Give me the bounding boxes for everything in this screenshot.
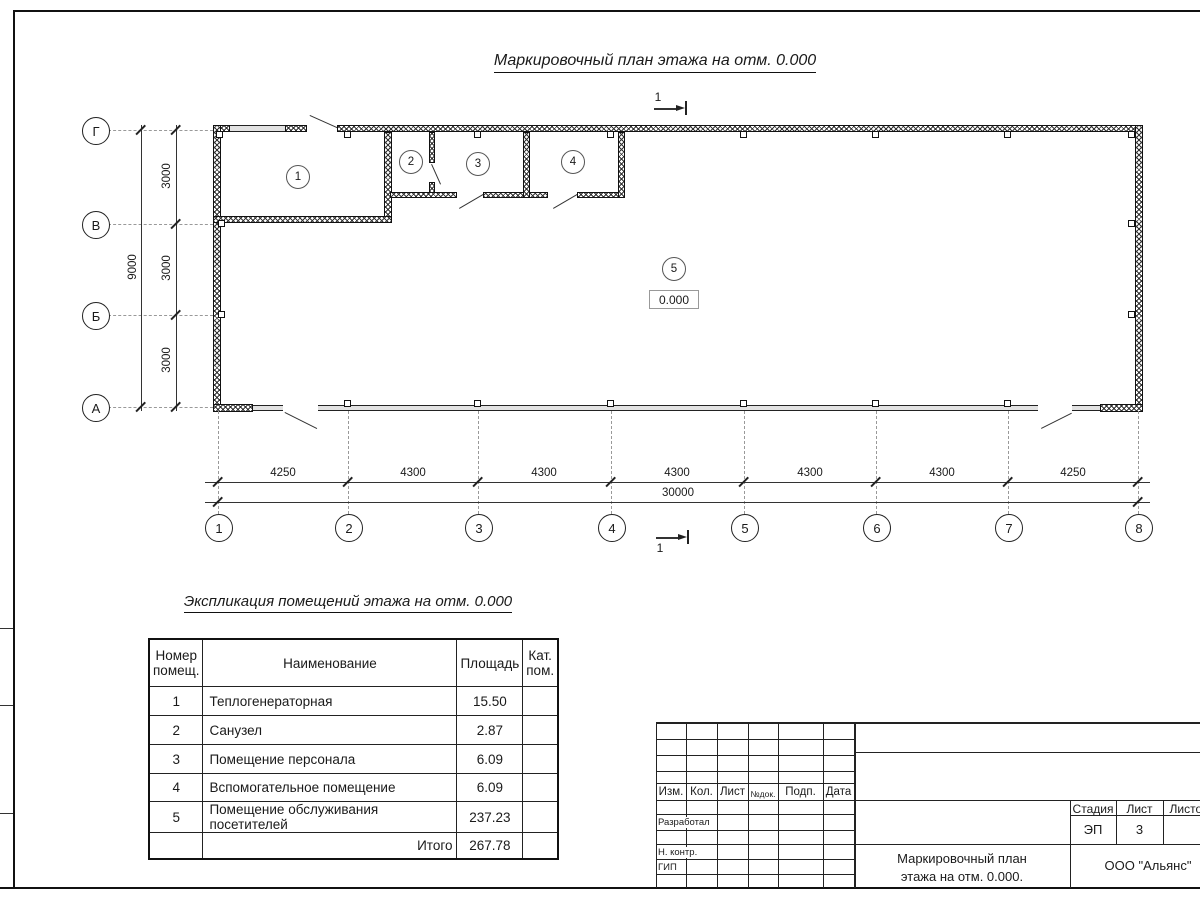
grid-axis-bubble: 4 xyxy=(598,514,626,542)
wall-segment xyxy=(1100,404,1143,412)
wall-segment xyxy=(523,132,530,198)
wall-segment xyxy=(213,404,253,412)
title-block-line xyxy=(656,874,854,875)
change-header-cell: Дата xyxy=(823,786,854,798)
title-block-line xyxy=(656,814,854,815)
col-header: Площадь xyxy=(457,639,523,687)
column-marker xyxy=(607,131,614,138)
company-name: ООО "Альянс" xyxy=(1070,858,1200,873)
column-marker xyxy=(872,131,879,138)
wall-segment xyxy=(483,192,548,198)
col-header: Номер помещ. xyxy=(149,639,203,687)
column-marker xyxy=(607,400,614,407)
table-row: 1 Теплогенераторная 15.50 xyxy=(149,687,558,716)
title-block-line xyxy=(656,722,657,888)
explication-table: Номер помещ. Наименование Площадь Кат. п… xyxy=(148,638,559,860)
room-number-bubble: 5 xyxy=(662,257,686,281)
change-header-cell: Лист xyxy=(717,786,748,798)
title-block-line xyxy=(656,739,854,740)
column-marker xyxy=(218,220,225,227)
title-block-line xyxy=(656,844,1200,845)
explication-title: Экспликация помещений этажа на отм. 0.00… xyxy=(168,593,528,613)
role-label: ГИП xyxy=(658,862,677,873)
change-header-cell: Подп. xyxy=(778,786,823,798)
title-block-line xyxy=(854,752,1200,753)
dimension-label: 4250 xyxy=(1038,467,1108,479)
frame-bottom xyxy=(0,887,1200,889)
total-label: Итого xyxy=(203,833,457,859)
frame-margin-mark xyxy=(0,705,13,706)
title-block-line xyxy=(656,783,854,784)
section-cut-bar xyxy=(685,101,687,115)
window-symbol xyxy=(230,125,285,132)
change-header-cell: Изм. xyxy=(656,786,686,798)
column-marker xyxy=(740,400,747,407)
title-block-line xyxy=(778,722,779,888)
dimension-label: 4300 xyxy=(378,467,448,479)
section-cut-line xyxy=(654,108,677,110)
dimension-line xyxy=(176,125,177,411)
table-header-row: Номер помещ. Наименование Площадь Кат. п… xyxy=(149,639,558,687)
frame-margin-mark xyxy=(0,813,13,814)
section-cut-label: 1 xyxy=(648,90,668,104)
change-header-cell: Кол. xyxy=(686,786,717,798)
dimension-label: 4300 xyxy=(907,467,977,479)
wall-segment xyxy=(213,125,221,411)
dimension-label: 4300 xyxy=(509,467,579,479)
grid-axis-line xyxy=(348,411,349,514)
role-label: Н. контр. xyxy=(658,847,697,858)
grid-axis-line xyxy=(108,224,213,225)
column-marker xyxy=(740,131,747,138)
section-cut-label: 1 xyxy=(650,541,670,555)
table-row: 2 Санузел 2.87 xyxy=(149,716,558,745)
grid-axis-bubble: 8 xyxy=(1125,514,1153,542)
dimension-label: 3000 xyxy=(161,240,173,296)
wall-segment xyxy=(390,192,457,198)
door-swing xyxy=(553,194,578,209)
elevation-mark: 0.000 xyxy=(649,290,699,309)
dimension-label: 4300 xyxy=(775,467,845,479)
grid-axis-bubble: А xyxy=(82,394,110,422)
section-cut-bar xyxy=(687,530,689,544)
grid-axis-bubble: Б xyxy=(82,302,110,330)
grid-axis-line xyxy=(744,411,745,514)
wall-segment xyxy=(618,132,625,198)
table-row: 4 Вспомогательное помещение 6.09 xyxy=(149,774,558,802)
grid-axis-bubble: 2 xyxy=(335,514,363,542)
grid-axis-line xyxy=(108,315,213,316)
grid-axis-bubble: 1 xyxy=(205,514,233,542)
column-marker xyxy=(1128,131,1135,138)
title-block-line xyxy=(686,722,687,888)
door-swing xyxy=(310,115,338,128)
grid-axis-bubble: В xyxy=(82,211,110,239)
title-block-line xyxy=(656,859,854,860)
grid-axis-bubble: Г xyxy=(82,117,110,145)
title-block-line xyxy=(656,800,1200,801)
sheet-value: 3 xyxy=(1116,822,1163,837)
doc-title: Маркировочный план этажа на отм. 0.000. xyxy=(887,850,1037,885)
grid-axis-line xyxy=(478,411,479,514)
plan-title: Маркировочный план этажа на отм. 0.000 xyxy=(400,52,910,73)
col-header: Кат. пом. xyxy=(523,639,558,687)
column-marker xyxy=(872,400,879,407)
column-marker xyxy=(1128,311,1135,318)
grid-axis-line xyxy=(876,411,877,514)
wall-segment xyxy=(285,125,307,132)
title-block-line xyxy=(823,722,824,888)
window-symbol xyxy=(1072,405,1100,411)
frame-left xyxy=(13,10,15,888)
table-total-row: Итого 267.78 xyxy=(149,833,558,859)
door-swing xyxy=(1041,413,1072,429)
grid-axis-line xyxy=(611,411,612,514)
total-value: 267.78 xyxy=(457,833,523,859)
column-marker xyxy=(218,311,225,318)
dimension-label: 4250 xyxy=(248,467,318,479)
grid-axis-line xyxy=(1008,411,1009,514)
dimension-label: 4300 xyxy=(642,467,712,479)
window-symbol xyxy=(318,405,1038,411)
column-marker xyxy=(344,131,351,138)
title-block-line xyxy=(854,722,856,888)
dimension-label: 30000 xyxy=(643,487,713,499)
room-number-bubble: 2 xyxy=(399,150,423,174)
title-block-line xyxy=(748,722,749,888)
column-marker xyxy=(344,400,351,407)
room-number-bubble: 1 xyxy=(286,165,310,189)
column-marker xyxy=(1128,220,1135,227)
window-symbol xyxy=(253,405,283,411)
title-block-line xyxy=(656,722,1200,724)
dimension-label: 9000 xyxy=(127,239,139,295)
section-cut-arrow-icon xyxy=(678,534,687,540)
table-row: 3 Помещение персонала 6.09 xyxy=(149,745,558,774)
wall-segment xyxy=(1135,125,1143,411)
sheets-header: Листов xyxy=(1163,802,1200,816)
title-block-line xyxy=(656,830,854,831)
column-marker xyxy=(474,400,481,407)
wall-segment xyxy=(577,192,620,198)
grid-axis-bubble: 7 xyxy=(995,514,1023,542)
grid-axis-line xyxy=(108,407,213,408)
title-block-line xyxy=(717,722,718,888)
dimension-label: 3000 xyxy=(161,332,173,388)
column-marker xyxy=(474,131,481,138)
wall-segment xyxy=(429,132,435,163)
sheet-header: Лист xyxy=(1116,802,1163,816)
door-swing xyxy=(285,412,318,429)
wall-segment xyxy=(384,132,392,223)
grid-axis-bubble: 5 xyxy=(731,514,759,542)
title-block-line xyxy=(656,771,854,772)
wall-segment xyxy=(213,216,392,223)
grid-axis-bubble: 3 xyxy=(465,514,493,542)
grid-axis-line xyxy=(108,130,213,131)
grid-axis-bubble: 6 xyxy=(863,514,891,542)
title-block-line xyxy=(656,755,854,756)
stage-value: ЭП xyxy=(1070,822,1116,837)
table-row: 5 Помещение обслуживания посетителей 237… xyxy=(149,802,558,833)
role-label: Разработал xyxy=(658,817,710,828)
column-marker xyxy=(216,131,223,138)
stage-header: Стадия xyxy=(1070,802,1116,816)
column-marker xyxy=(1004,400,1011,407)
drawing-sheet: Маркировочный план этажа на отм. 0.000 1 xyxy=(0,0,1200,900)
change-header-cell: №док. xyxy=(748,789,778,799)
dimension-line xyxy=(141,125,142,411)
room-number-bubble: 3 xyxy=(466,152,490,176)
column-marker xyxy=(1004,131,1011,138)
section-cut-arrow-icon xyxy=(676,105,685,111)
section-cut-line xyxy=(656,537,679,539)
dimension-label: 3000 xyxy=(161,148,173,204)
door-swing xyxy=(459,194,484,209)
room-number-bubble: 4 xyxy=(561,150,585,174)
frame-top xyxy=(13,10,1200,12)
col-header: Наименование xyxy=(203,639,457,687)
dimension-line xyxy=(205,502,1150,503)
frame-margin-mark xyxy=(0,628,13,629)
